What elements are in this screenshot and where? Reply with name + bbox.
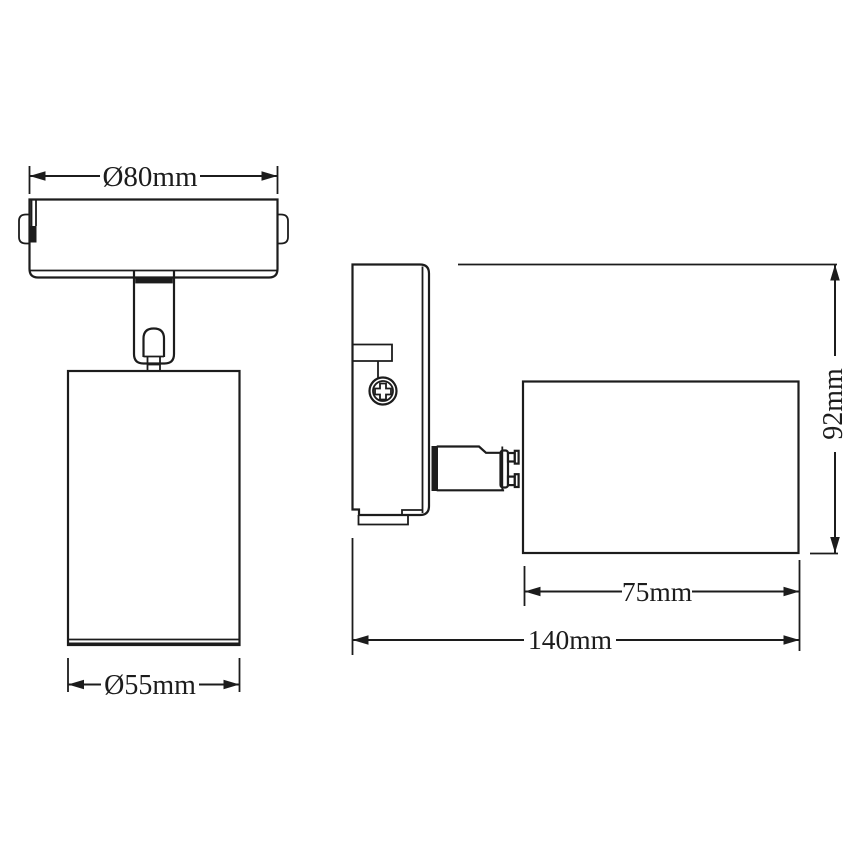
plate-slot-filled [30, 226, 37, 243]
side-screw-knob-left [19, 215, 30, 244]
arrowhead-left [353, 635, 369, 645]
pivot-knuckle [144, 329, 165, 358]
arrowhead-right [784, 635, 800, 645]
plate-foot [359, 515, 409, 525]
arrowhead-up [830, 265, 840, 281]
dimension-label-body-length: 75mm [622, 576, 692, 607]
body-outline-front [68, 371, 240, 645]
arrowhead-right [784, 587, 800, 597]
technical-drawing-page: Ø80mm [0, 0, 868, 868]
arrowhead-left [525, 587, 541, 597]
side-screw-knob-right [278, 215, 289, 244]
dimension-label-height: 92mm [818, 368, 849, 440]
dimension-plate-diameter: Ø80mm [30, 161, 278, 194]
arm-joint-bar [432, 446, 439, 491]
gu10-pin-cap-upper [515, 451, 519, 464]
dimension-label-total-depth: 140mm [528, 624, 612, 655]
side-view: 92mm 75mm 140mm [353, 265, 850, 656]
gu10-pin-cap-lower [515, 474, 519, 487]
stem-slot-bar [135, 278, 173, 284]
socket-top-edge [438, 447, 503, 453]
dimension-total-depth: 140mm [353, 538, 800, 655]
plate-outline [30, 200, 278, 278]
lamp-body-side [523, 382, 799, 554]
arrowhead-right [262, 171, 278, 181]
arrowhead-left [30, 171, 46, 181]
wall-plate-side [353, 265, 430, 525]
arrowhead-left [68, 680, 84, 690]
dimension-label-plate-diameter: Ø80mm [102, 161, 198, 193]
spotlight-dimension-drawing: Ø80mm [0, 0, 868, 868]
arrowhead-down [830, 537, 840, 553]
lamp-socket-arm [432, 446, 519, 491]
front-view: Ø80mm [19, 161, 288, 701]
pivot-stem [134, 272, 174, 371]
arrowhead-right [224, 680, 240, 690]
dimension-label-body-diameter: Ø55mm [104, 670, 196, 701]
ceiling-plate [19, 200, 288, 278]
lamp-body-front [68, 371, 240, 645]
dimension-body-diameter: Ø55mm [68, 658, 240, 701]
